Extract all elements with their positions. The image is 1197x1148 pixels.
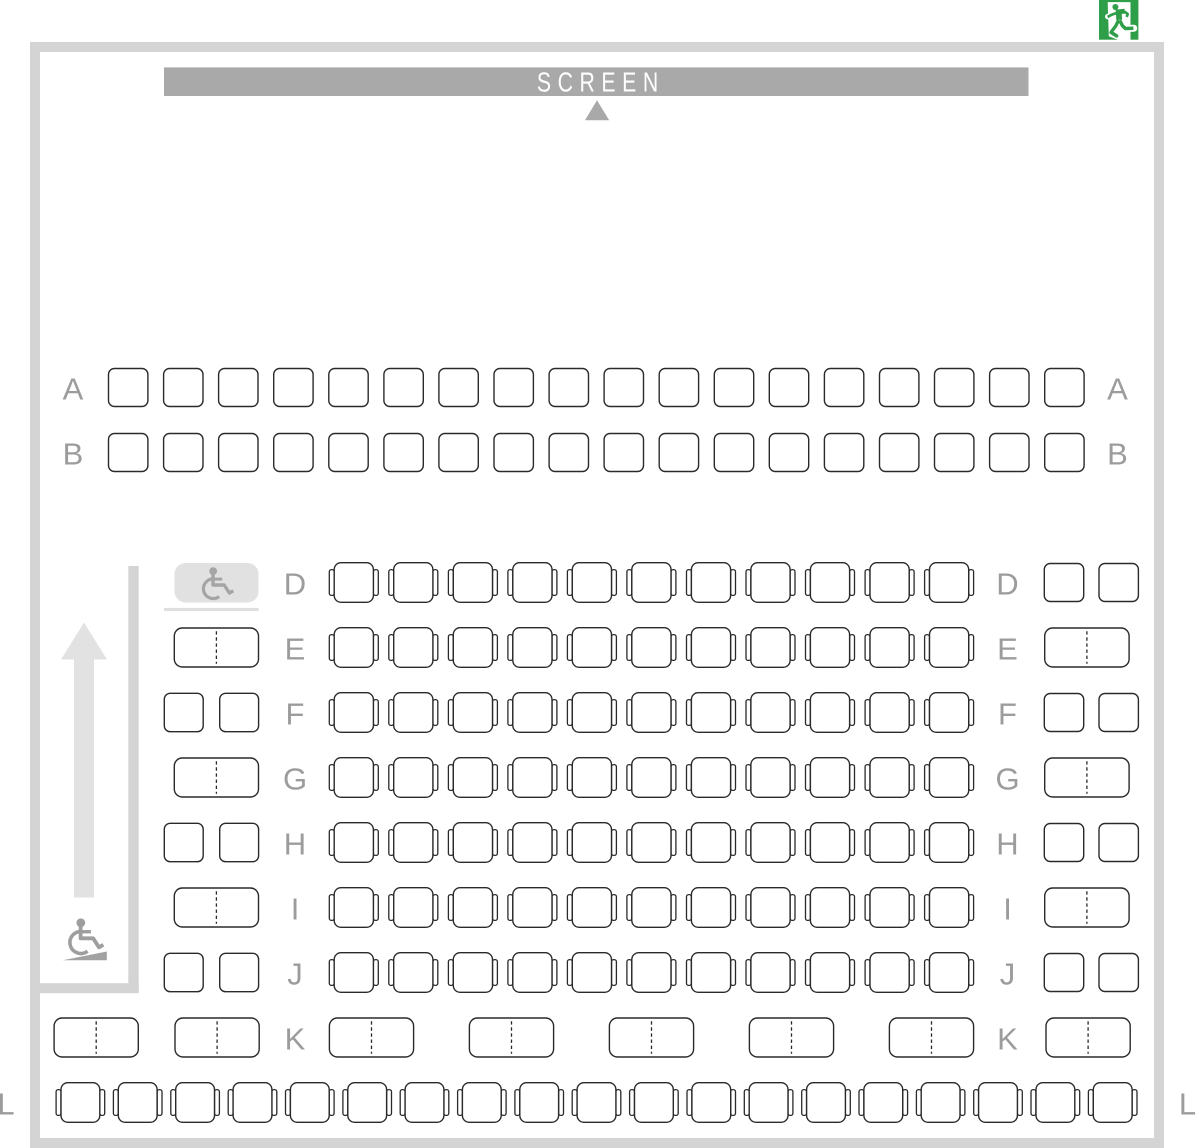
svg-text:L: L	[0, 1087, 15, 1122]
svg-text:B: B	[63, 437, 84, 472]
svg-text:F: F	[998, 697, 1017, 732]
svg-text:I: I	[1003, 892, 1012, 927]
svg-text:H: H	[996, 827, 1018, 862]
svg-text:E: E	[285, 632, 306, 667]
svg-text:F: F	[286, 697, 305, 732]
svg-text:K: K	[285, 1022, 306, 1057]
svg-text:I: I	[291, 892, 300, 927]
svg-text:K: K	[997, 1022, 1018, 1057]
svg-text:L: L	[1179, 1087, 1196, 1122]
svg-text:G: G	[283, 762, 307, 797]
svg-text:SCREEN: SCREEN	[537, 67, 665, 99]
svg-text:D: D	[996, 567, 1018, 602]
svg-text:A: A	[1107, 372, 1128, 407]
svg-text:A: A	[63, 372, 84, 407]
svg-text:J: J	[1000, 957, 1016, 992]
svg-text:H: H	[284, 827, 306, 862]
svg-text:J: J	[287, 957, 303, 992]
svg-text:E: E	[997, 632, 1018, 667]
svg-text:B: B	[1107, 437, 1128, 472]
svg-text:G: G	[995, 762, 1019, 797]
svg-text:D: D	[284, 567, 306, 602]
